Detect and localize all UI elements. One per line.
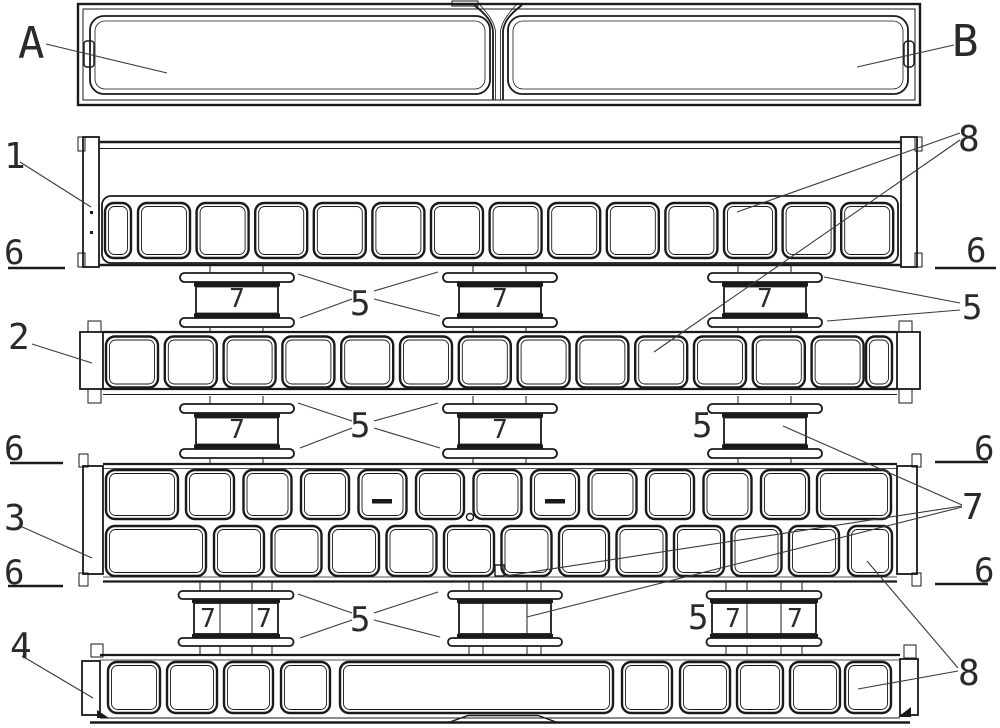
- spool-label: 7: [492, 284, 508, 314]
- beam-window-inner: [345, 340, 390, 384]
- section-label-6: 6: [4, 429, 24, 469]
- beam3-right-cap-tab-bottom: [912, 573, 921, 586]
- leader-line: [300, 620, 352, 638]
- beam-window: [474, 470, 522, 519]
- spool-flange-top: [443, 273, 557, 282]
- beam-window: [518, 337, 570, 388]
- section-label-6: 6: [966, 231, 986, 271]
- beam-2: [80, 321, 920, 403]
- spool-flange-bottom: [707, 638, 822, 646]
- beam-window: [761, 470, 809, 519]
- beam-1: [78, 137, 922, 267]
- beam-window: [329, 526, 379, 576]
- beam-window-inner: [505, 530, 548, 573]
- view-label-b: B: [952, 16, 979, 67]
- leader-line: [298, 274, 352, 291]
- spacer-spool: 77: [179, 582, 294, 655]
- leader-line: [298, 403, 352, 421]
- beam-window-inner: [626, 666, 669, 710]
- beam-window: [737, 662, 783, 713]
- spool-label: 7: [229, 415, 245, 445]
- beam-window-inner: [852, 530, 889, 573]
- spool-label: 7: [256, 604, 272, 634]
- beam-window: [559, 526, 609, 576]
- beam1-right-flange-tab-bottom: [915, 253, 922, 267]
- beam2-right-cap: [897, 332, 920, 389]
- spool-flange-bottom: [443, 318, 557, 327]
- leader-line: [374, 272, 438, 291]
- leader-line: [20, 162, 91, 207]
- beam-window: [224, 337, 276, 388]
- beam-window: [341, 337, 393, 388]
- section-label-6: 6: [4, 233, 24, 273]
- leader-line: [505, 506, 962, 576]
- beam-window: [732, 526, 782, 576]
- beam-window: [431, 203, 483, 258]
- section-label-6: 6: [974, 429, 994, 469]
- beam3-slot-mark: [545, 499, 565, 504]
- beam-window-inner: [552, 207, 597, 255]
- beam4-windows: [108, 662, 891, 713]
- spacer-spool: 77: [707, 582, 822, 655]
- beam-window-inner: [142, 207, 187, 255]
- beam-4: [82, 644, 918, 723]
- beam4-right-cap: [900, 659, 918, 715]
- beam-window: [789, 526, 839, 576]
- leader-line: [374, 299, 440, 316]
- beam-window-inner: [110, 530, 203, 573]
- beam-window: [106, 470, 178, 519]
- beam1-rivet-dot: [90, 231, 93, 234]
- beam-window-inner: [448, 530, 491, 573]
- spool-label: 7: [787, 604, 803, 634]
- spool-flange-bottom: [180, 318, 294, 327]
- beam-window: [817, 470, 891, 519]
- beam-window-inner: [821, 474, 888, 516]
- beam1-left-flange-tab-bottom: [78, 253, 85, 267]
- beam-window-inner: [109, 207, 128, 255]
- beam-window-inner: [793, 530, 836, 573]
- beam-window-inner: [610, 207, 655, 255]
- callout-spacer-5: 5: [692, 406, 712, 446]
- callout-spool-7: 7: [962, 487, 984, 528]
- section-label-6: 6: [974, 551, 994, 591]
- beam-window-inner: [669, 207, 714, 255]
- spacer-spool: 7: [180, 265, 294, 332]
- upper-beam-inner-line: [83, 9, 915, 100]
- beam-window: [790, 662, 840, 713]
- beam-window-inner: [684, 666, 727, 710]
- spool-flange-top: [443, 404, 557, 413]
- beam-window-inner: [112, 666, 157, 710]
- beam-window-inner: [362, 474, 403, 516]
- leader-line: [654, 140, 960, 352]
- beam-window-inner: [592, 474, 633, 516]
- beam-window-inner: [735, 530, 778, 573]
- beam-window-inner: [420, 474, 461, 516]
- spool-flange-top: [179, 591, 294, 599]
- beam-window-inner: [404, 340, 449, 384]
- spacer-spool: 7: [443, 396, 557, 464]
- beam3-bottom-windows: [106, 526, 892, 576]
- beam-window-inner: [285, 666, 327, 710]
- beam-window: [490, 203, 542, 258]
- beam-window: [108, 662, 160, 713]
- leader-line: [298, 594, 352, 613]
- spool-label: 7: [725, 604, 741, 634]
- beam-window-inner: [650, 474, 691, 516]
- beam-window-inner: [815, 340, 860, 384]
- beam-window: [416, 470, 464, 519]
- beam-window-inner: [462, 340, 507, 384]
- leader-line: [858, 671, 958, 689]
- spool-label: 7: [229, 284, 245, 314]
- callout-spacer-5: 5: [350, 406, 370, 446]
- leader-line: [827, 310, 960, 321]
- leader-line: [737, 133, 960, 212]
- spool-flange-top: [180, 404, 294, 413]
- beam-window: [674, 526, 724, 576]
- beam-window-inner: [698, 340, 743, 384]
- spool-flange-bottom: [708, 318, 822, 327]
- beam-window-inner: [333, 530, 376, 573]
- spacer-spool: [708, 396, 822, 464]
- leader-line: [374, 592, 438, 613]
- beam-window-inner: [110, 340, 155, 384]
- callout-spacer-5: 5: [688, 598, 708, 638]
- upper-beam-outer: [78, 4, 920, 105]
- beam1-windows: [105, 203, 893, 258]
- beam3-slot-mark: [372, 499, 392, 504]
- beam-window-inner: [227, 340, 272, 384]
- beam-window: [607, 203, 659, 258]
- beam-window: [255, 203, 307, 258]
- beam-window-inner: [390, 530, 433, 573]
- beam-window: [724, 203, 776, 258]
- beam-window: [502, 526, 552, 576]
- spacer-spool: [448, 582, 562, 655]
- beam3-top-windows: [106, 470, 891, 519]
- beam-window-inner: [376, 207, 421, 255]
- beam-window: [704, 470, 752, 519]
- beam3-hole: [467, 514, 474, 521]
- beam-window-inner: [728, 207, 773, 255]
- beam-window: [340, 662, 613, 713]
- beam-window-inner: [756, 340, 801, 384]
- beam-window: [138, 203, 190, 258]
- spool-flange-bottom: [708, 449, 822, 458]
- beam1-rivet-dot: [90, 211, 93, 214]
- beam-window: [841, 203, 893, 258]
- beam-window: [694, 337, 746, 388]
- leader-line: [32, 344, 92, 363]
- section-label-6: 6: [4, 553, 24, 593]
- beam-window-inner: [259, 207, 304, 255]
- upper-beam-right-panel: [508, 16, 908, 94]
- spacer-spools: 777777777: [179, 265, 823, 655]
- beam-window-inner: [435, 207, 480, 255]
- beam-window: [272, 526, 322, 576]
- spool-flange-top: [448, 591, 562, 599]
- upper-beam-left-panel-inner: [95, 21, 485, 89]
- leader-line: [374, 403, 438, 421]
- spool-label: 7: [492, 415, 508, 445]
- beam2-right-cap-tab-top: [899, 321, 912, 332]
- spool-flange-top: [708, 273, 822, 282]
- beam-window-inner: [228, 666, 270, 710]
- beam-window-inner: [247, 474, 288, 516]
- beam-window: [680, 662, 730, 713]
- beam-window-inner: [580, 340, 625, 384]
- beam-window: [548, 203, 600, 258]
- beam-window-inner: [741, 666, 780, 710]
- beam-window: [646, 470, 694, 519]
- beam-window: [444, 526, 494, 576]
- upper-beam-right-panel-inner: [513, 21, 903, 89]
- beam-window-inner: [190, 474, 231, 516]
- beam-window: [224, 662, 273, 713]
- upper-beam-assembly: [78, 1, 920, 105]
- spool-label: 7: [757, 284, 773, 314]
- spool-flange-top: [180, 273, 294, 282]
- spool-flange-bottom: [448, 638, 562, 646]
- beam-window: [459, 337, 511, 388]
- beam-window: [197, 203, 249, 258]
- leader-line: [374, 428, 440, 448]
- beam2-right-cap-tab-bottom: [899, 389, 912, 403]
- beam1-right-flange: [901, 137, 917, 267]
- beam-window: [301, 470, 349, 519]
- beam3-right-cap-tab-top: [912, 454, 921, 467]
- beam3-right-cap: [897, 466, 917, 574]
- beam-window: [589, 470, 637, 519]
- beam-window: [186, 470, 234, 519]
- callout-labels: A B 1 2 3 4 6 6 6 6 6 6 5 5 5 5 5 5 7 8 …: [4, 16, 994, 694]
- beam-window: [359, 470, 407, 519]
- beam3-left-cap-tab-bottom: [79, 573, 88, 586]
- beam-window-inner: [845, 207, 890, 255]
- spool-body: [459, 603, 551, 634]
- beam-window: [635, 337, 687, 388]
- beam-window-inner: [171, 666, 214, 710]
- beam-window-inner: [286, 340, 331, 384]
- callout-cell-8-top: 8: [958, 119, 980, 160]
- spacer-spool: 7: [180, 396, 294, 464]
- beam-window-inner: [765, 474, 806, 516]
- beam-window-inner: [110, 474, 175, 516]
- beam-window: [665, 203, 717, 258]
- callout-cell-8-bottom: 8: [958, 653, 980, 694]
- view-label-a: A: [18, 18, 45, 69]
- beam-window: [244, 470, 292, 519]
- callout-beam2: 2: [8, 317, 30, 358]
- beam-window-inner: [794, 666, 837, 710]
- beam-window-inner: [620, 530, 663, 573]
- callout-spacer-5: 5: [350, 284, 370, 324]
- beam-window-inner: [707, 474, 748, 516]
- beam-window: [812, 337, 864, 388]
- leader-line: [824, 277, 960, 303]
- beam-window: [372, 203, 424, 258]
- beam-window: [617, 526, 667, 576]
- beam-window: [387, 526, 437, 576]
- beam2-left-cap-tab-top: [88, 321, 101, 332]
- spool-flange-top: [707, 591, 822, 599]
- beam2-left-cap-tab-bottom: [88, 389, 101, 403]
- beam3-left-cap: [83, 466, 103, 574]
- beam-window-inner: [870, 340, 889, 384]
- beam-window-inner: [200, 207, 245, 255]
- spacer-spool: 7: [443, 265, 557, 332]
- beam4-bottom-lug: [450, 716, 556, 723]
- beam-window-inner: [678, 530, 721, 573]
- beam4-weld-mark-left: [97, 710, 109, 718]
- beam-window: [400, 337, 452, 388]
- beam1-left-flange: [83, 137, 99, 267]
- beam-window: [106, 526, 206, 576]
- callout-spacer-5: 5: [962, 288, 982, 328]
- callout-beam1: 1: [4, 136, 26, 177]
- beam-assembly-diagram: 777777777 A B 1 2 3 4 6 6 6 6 6 6 5 5 5 …: [0, 0, 1000, 728]
- leader-line: [374, 620, 440, 637]
- beam-window-inner: [535, 474, 576, 516]
- beam-3: [79, 454, 921, 586]
- beam4-right-cap-tab: [904, 645, 916, 658]
- beam-window-inner: [477, 474, 518, 516]
- beam-window-inner: [275, 530, 318, 573]
- spool-flange-bottom: [180, 449, 294, 458]
- patent-drawing: 777777777 A B 1 2 3 4 6 6 6 6 6 6 5 5 5 …: [0, 0, 1000, 728]
- beam-window: [106, 337, 158, 388]
- beam-window-inner: [493, 207, 538, 255]
- leader-line: [857, 45, 954, 67]
- leader-line: [20, 526, 92, 558]
- beam-window: [622, 662, 672, 713]
- leader-line: [300, 428, 352, 448]
- spool-flange-bottom: [179, 638, 294, 646]
- beam-window: [314, 203, 366, 258]
- beam3-left-cap-tab-top: [79, 454, 88, 467]
- callout-beam3: 3: [4, 498, 26, 539]
- spool-label: 7: [200, 604, 216, 634]
- beam-window-inner: [305, 474, 346, 516]
- beam-window-inner: [786, 207, 831, 255]
- beam-window-inner: [168, 340, 213, 384]
- spool-flange-top: [708, 404, 822, 413]
- beam-window: [753, 337, 805, 388]
- beam-window-inner: [317, 207, 362, 255]
- beam-window: [848, 526, 892, 576]
- beam-window-inner: [521, 340, 566, 384]
- beam-window: [576, 337, 628, 388]
- spool-flange-bottom: [443, 449, 557, 458]
- beam-window-inner: [344, 666, 610, 710]
- beam-window: [531, 470, 579, 519]
- beam1-left-flange-tab-top: [78, 137, 85, 151]
- leader-line: [300, 299, 352, 318]
- beam-window: [214, 526, 264, 576]
- beam-window-inner: [218, 530, 261, 573]
- beam-window: [167, 662, 217, 713]
- callout-spacer-5: 5: [350, 600, 370, 640]
- beam-window: [282, 337, 334, 388]
- beam4-left-cap: [82, 661, 100, 715]
- upper-beam-left-panel: [90, 16, 490, 94]
- callout-beam4: 4: [10, 626, 32, 667]
- beam-window: [281, 662, 330, 713]
- beam-window: [165, 337, 217, 388]
- leader-line: [46, 44, 167, 73]
- beam-window: [783, 203, 835, 258]
- beam2-windows: [106, 337, 892, 388]
